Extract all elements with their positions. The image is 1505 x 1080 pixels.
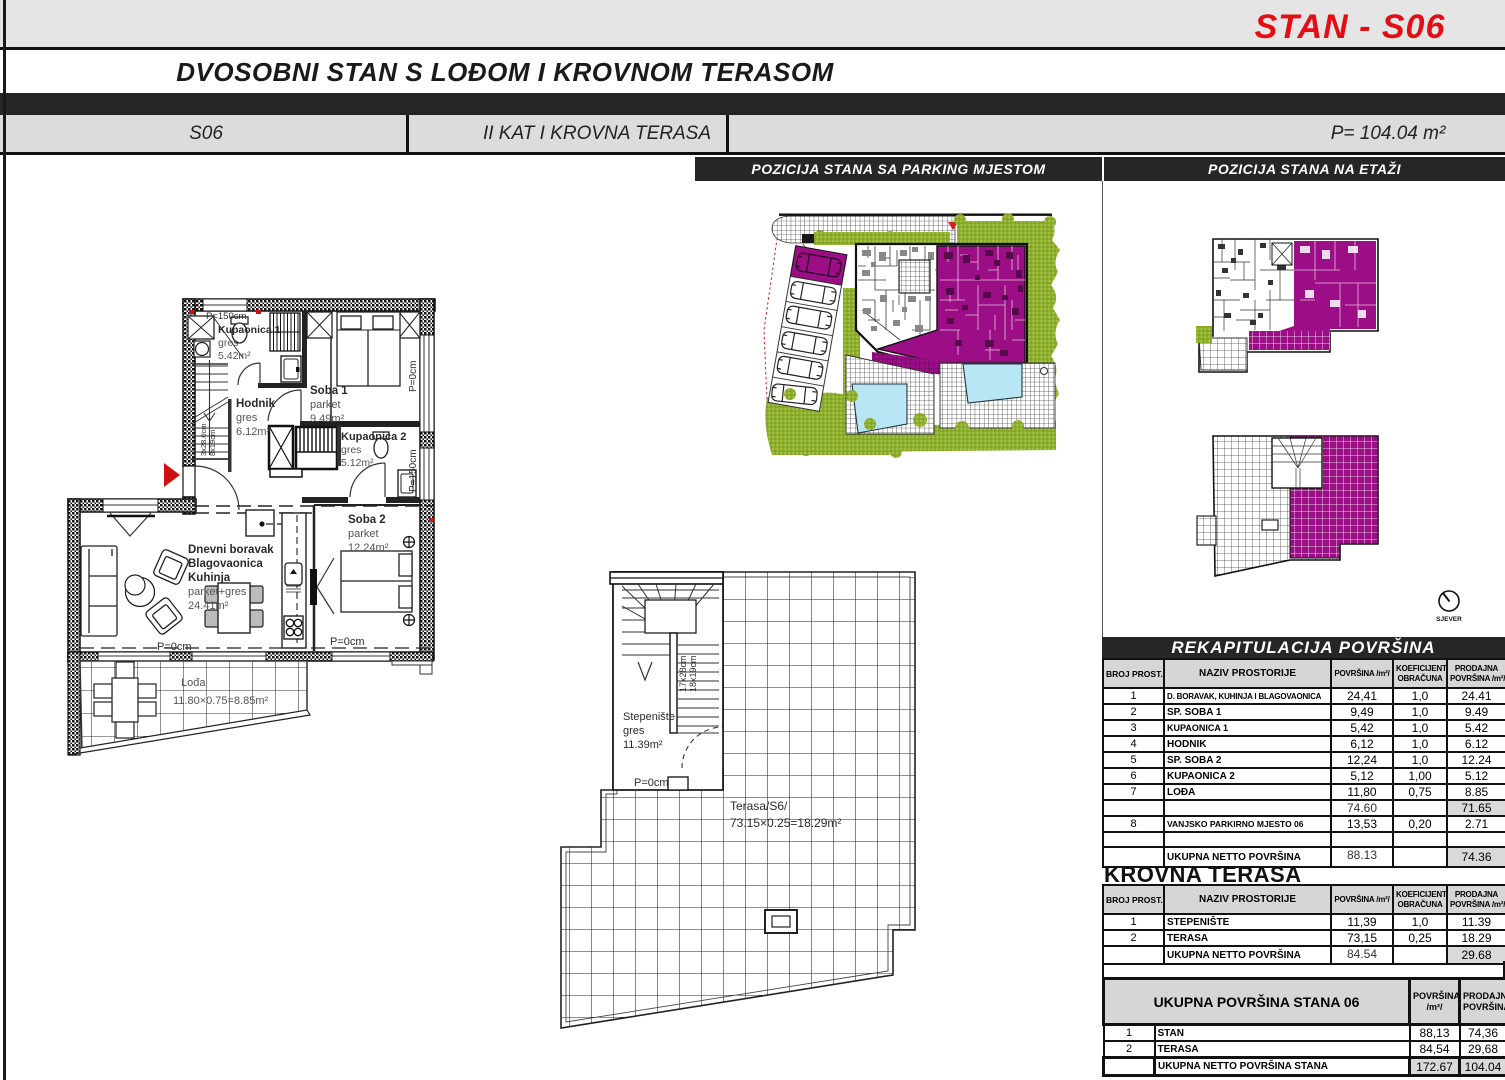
svg-text:P=150cm: P=150cm (206, 311, 246, 322)
svg-text:parket+gres: parket+gres (188, 586, 247, 598)
svg-text:11.80×0.75=8.85m²: 11.80×0.75=8.85m² (173, 695, 269, 707)
svg-text:6.12m²: 6.12m² (236, 426, 271, 438)
svg-text:Lođa: Lođa (181, 677, 206, 689)
svg-text:Soba 1: Soba 1 (310, 385, 348, 397)
svg-text:gres: gres (218, 337, 238, 349)
svg-text:17x28cm: 17x28cm (678, 655, 688, 692)
svg-text:gres: gres (341, 444, 361, 456)
svg-text:P=0cm: P=0cm (330, 636, 365, 648)
svg-text:parket: parket (348, 528, 379, 540)
svg-text:Kuhinja: Kuhinja (188, 572, 231, 584)
svg-text:8x19cm: 8x19cm (208, 430, 217, 456)
svg-text:P=150cm: P=150cm (408, 449, 419, 492)
svg-text:9.49m²: 9.49m² (310, 413, 345, 425)
svg-text:73.15×0.25=18.29m²: 73.15×0.25=18.29m² (730, 816, 841, 830)
svg-text:Kupaonica 2: Kupaonica 2 (341, 431, 406, 443)
svg-text:Soba 2: Soba 2 (348, 514, 386, 526)
svg-text:5.12m²: 5.12m² (341, 457, 374, 469)
svg-text:Terasa/S6/: Terasa/S6/ (730, 799, 788, 813)
svg-text:Blagovaonica: Blagovaonica (188, 558, 263, 570)
svg-text:12.24m²: 12.24m² (348, 542, 389, 554)
svg-text:parket: parket (310, 399, 341, 411)
svg-text:SJEVER: SJEVER (1436, 616, 1462, 623)
svg-text:Stepenište: Stepenište (623, 711, 675, 723)
svg-text:gres: gres (236, 412, 258, 424)
svg-text:P=0cm: P=0cm (408, 361, 419, 392)
svg-text:Dnevni boravak: Dnevni boravak (188, 544, 274, 556)
svg-text:P=0cm: P=0cm (634, 777, 669, 789)
svg-text:18x19cm: 18x19cm (688, 655, 698, 692)
svg-text:11.39m²: 11.39m² (623, 739, 663, 751)
svg-text:24.41m²: 24.41m² (188, 600, 229, 612)
svg-text:gres: gres (623, 725, 645, 737)
svg-text:P=0cm: P=0cm (157, 641, 192, 653)
svg-text:5.42m²: 5.42m² (218, 350, 251, 362)
svg-text:Kupaonica 1: Kupaonica 1 (218, 324, 281, 336)
svg-text:Hodnik: Hodnik (236, 398, 276, 410)
svg-text:3x28.0cm: 3x28.0cm (199, 423, 208, 456)
